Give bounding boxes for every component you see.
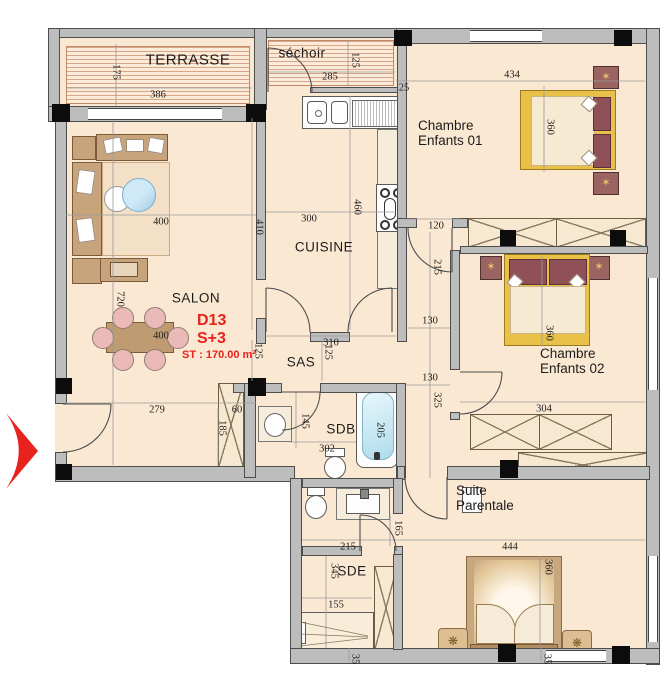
dining-chair — [144, 307, 166, 329]
dim-label: 145 — [300, 413, 311, 429]
dim-label: 155 — [328, 600, 344, 611]
glass-table — [122, 178, 156, 212]
sdb-basin — [264, 413, 286, 437]
unit-type: S+3 — [197, 330, 226, 348]
dim-label: 400 — [153, 331, 169, 342]
sofa-pillow — [75, 217, 95, 243]
wall — [393, 478, 403, 514]
nightstand: ✶ — [480, 256, 502, 280]
wall — [48, 28, 262, 38]
label-salon: SALON — [172, 291, 220, 306]
dim-label: 125 — [350, 52, 361, 68]
wall — [396, 383, 406, 478]
burner — [380, 220, 390, 230]
dining-chair — [112, 307, 134, 329]
sde-faucet — [360, 489, 369, 499]
wall — [393, 554, 403, 650]
sink-bowl — [331, 101, 348, 124]
label-chambre2: Chambre Enfants 02 — [540, 346, 605, 376]
entrance-arrow — [6, 413, 38, 489]
label-suite: Suite Parentale — [456, 483, 514, 513]
bathtub-faucet — [374, 452, 380, 460]
dim-label: 386 — [150, 90, 166, 101]
label-sechoir: séchoir — [278, 46, 325, 61]
terrace-sliding-window — [88, 108, 222, 120]
dim-label: 304 — [536, 404, 552, 415]
shower — [294, 612, 374, 652]
label-line: Parentale — [456, 498, 514, 513]
dim-label: 325 — [432, 392, 443, 408]
column — [394, 30, 412, 46]
label-cuisine: CUISINE — [295, 240, 353, 255]
wall — [55, 118, 67, 404]
wall — [450, 250, 460, 370]
wall — [262, 28, 400, 38]
sofa-cushion — [126, 139, 144, 152]
dining-chair — [167, 327, 189, 349]
column — [248, 378, 266, 396]
dining-chair — [144, 349, 166, 371]
wall — [55, 466, 295, 482]
column — [56, 378, 72, 394]
dim-label: 130 — [422, 316, 438, 327]
dim-label: 345 — [329, 563, 340, 579]
dim-label: 300 — [301, 214, 317, 225]
dim-label: 302 — [319, 444, 335, 455]
dim-label: 360 — [543, 559, 554, 575]
stove-center — [384, 198, 396, 220]
toilet-bowl — [324, 456, 346, 479]
window-chambre1 — [470, 30, 542, 42]
wall — [460, 246, 648, 254]
dim-label: 279 — [149, 405, 165, 416]
wall — [290, 478, 302, 658]
wardrobe-chambre1 — [556, 218, 646, 248]
wall — [320, 383, 397, 393]
dim-label: 215 — [432, 259, 443, 275]
label-line: Enfants 02 — [540, 361, 605, 376]
toilet-bowl — [305, 495, 327, 519]
floor-plan: ✶ ✶ ✶ ✶ ❋ ❋ — [0, 0, 665, 700]
column — [610, 230, 626, 246]
dining-chair — [92, 327, 114, 349]
nightstand: ✶ — [593, 172, 619, 195]
dim-label: 25 — [399, 83, 410, 94]
sofa-armrest — [72, 136, 96, 160]
dining-chair — [112, 349, 134, 371]
wall — [256, 108, 266, 280]
dim-label: 400 — [153, 217, 169, 228]
dim-label: 175 — [111, 64, 122, 80]
label-line: Chambre — [418, 118, 483, 133]
dim-label: 720 — [115, 291, 126, 307]
dim-label: 130 — [422, 373, 438, 384]
column — [246, 104, 266, 122]
label-line: Chambre — [540, 346, 605, 361]
sink-drainer — [352, 100, 399, 127]
label-chambre1: Chambre Enfants 01 — [418, 118, 483, 148]
wall — [244, 383, 256, 478]
dim-label: 444 — [502, 542, 518, 553]
dim-label: 460 — [352, 199, 363, 215]
sink-drain — [315, 110, 322, 117]
label-line: Enfants 01 — [418, 133, 483, 148]
dim-label: 120 — [428, 221, 444, 232]
dim-label: 125 — [323, 344, 334, 360]
window-chambre2 — [648, 278, 658, 390]
label-terrasse: TERRASSE — [146, 52, 231, 69]
dim-label: 215 — [340, 542, 356, 553]
dim-label: 360 — [545, 119, 556, 135]
window-suite — [648, 556, 658, 642]
wall — [397, 218, 417, 228]
dim-label: 434 — [504, 70, 520, 81]
column — [56, 464, 72, 480]
column — [500, 460, 518, 478]
unit-area: ST : 170.00 m² — [182, 349, 256, 361]
nightstand: ✶ — [593, 66, 619, 89]
dim-label: 185 — [217, 420, 228, 436]
window-suite-south — [546, 650, 606, 662]
wall — [450, 412, 460, 420]
column — [500, 230, 516, 246]
wardrobe-chambre2 — [539, 414, 612, 450]
wall — [302, 478, 403, 488]
dim-label: 60 — [232, 405, 243, 416]
dim-label: 35 — [350, 654, 361, 665]
dim-label: 360 — [544, 325, 555, 341]
column — [612, 646, 630, 664]
wall — [256, 318, 266, 344]
sofa-pillow — [75, 169, 95, 195]
column — [614, 30, 632, 46]
wardrobe-chambre2 — [470, 414, 540, 450]
wall — [447, 466, 650, 480]
wall — [254, 28, 267, 110]
dim-label: 285 — [322, 72, 338, 83]
label-sas: SAS — [287, 355, 316, 370]
armchair — [72, 258, 102, 284]
column — [498, 644, 516, 662]
burner — [380, 188, 390, 198]
column — [52, 104, 70, 122]
dim-label: 165 — [393, 520, 404, 536]
bed-pillow — [593, 134, 611, 168]
dim-label: 410 — [254, 219, 265, 235]
tv — [110, 262, 138, 277]
label-sdb: SDB — [326, 422, 355, 437]
dim-label: 35 — [542, 654, 553, 665]
dim-label: 205 — [375, 422, 386, 438]
sofa-cushion — [147, 137, 165, 155]
label-sde: SDE — [337, 564, 366, 579]
nightstand: ✶ — [588, 256, 610, 280]
wall — [310, 87, 400, 93]
unit-code: D13 — [197, 312, 226, 330]
wall — [452, 218, 468, 228]
label-line: Suite — [456, 483, 514, 498]
